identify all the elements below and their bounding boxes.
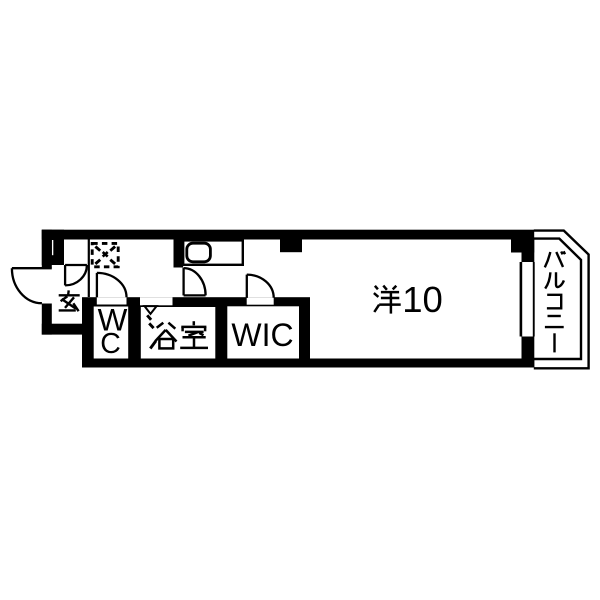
svg-text:WIC: WIC — [231, 317, 293, 353]
svg-text:C: C — [100, 328, 121, 360]
svg-text:10: 10 — [402, 279, 443, 320]
